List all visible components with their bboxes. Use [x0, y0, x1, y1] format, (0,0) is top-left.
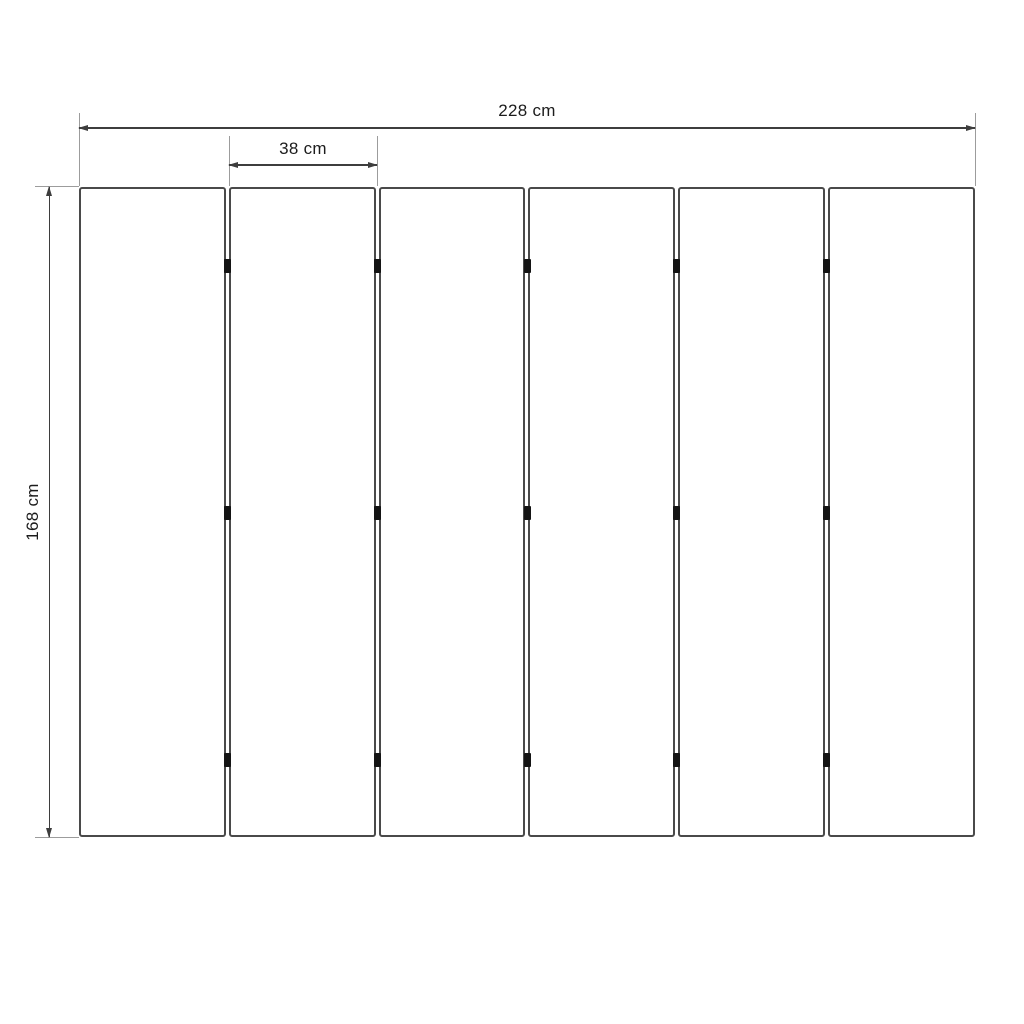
hinge-mark-4-3 — [673, 753, 680, 767]
panel-5 — [678, 187, 825, 837]
hinge-mark-4-1 — [673, 259, 680, 273]
dimension-drawing: 228 cm 38 cm 168 cm — [0, 0, 1024, 1024]
arrow-right-icon — [966, 125, 976, 131]
hinge-mark-5-3 — [823, 753, 830, 767]
arrow-left-icon — [78, 125, 88, 131]
hinge-mark-1-1 — [224, 259, 231, 273]
total-width-label: 228 cm — [79, 101, 975, 121]
arrow-down-icon — [46, 828, 52, 838]
arrow-left-icon — [228, 162, 238, 168]
panel-2 — [229, 187, 376, 837]
panel-1 — [79, 187, 226, 837]
height-label: 168 cm — [23, 479, 43, 545]
hinge-mark-3-2 — [524, 506, 531, 520]
total-width-dimension-line — [79, 127, 975, 129]
panel-4 — [528, 187, 675, 837]
hinge-mark-2-1 — [374, 259, 381, 273]
hinge-mark-1-3 — [224, 753, 231, 767]
hinge-mark-2-3 — [374, 753, 381, 767]
hinge-mark-3-1 — [524, 259, 531, 273]
height-extension-line-bottom — [35, 837, 79, 838]
arrow-right-icon — [368, 162, 378, 168]
arrow-up-icon — [46, 186, 52, 196]
hinge-mark-2-2 — [374, 506, 381, 520]
panel-width-label: 38 cm — [229, 139, 377, 159]
hinge-mark-3-3 — [524, 753, 531, 767]
panel-6 — [828, 187, 975, 837]
panel-3 — [379, 187, 526, 837]
hinge-mark-5-2 — [823, 506, 830, 520]
height-dimension-line — [49, 187, 51, 837]
hinge-mark-1-2 — [224, 506, 231, 520]
height-extension-line-top — [35, 186, 79, 187]
panel-width-dimension-line — [229, 164, 377, 166]
hinge-mark-4-2 — [673, 506, 680, 520]
hinge-mark-5-1 — [823, 259, 830, 273]
